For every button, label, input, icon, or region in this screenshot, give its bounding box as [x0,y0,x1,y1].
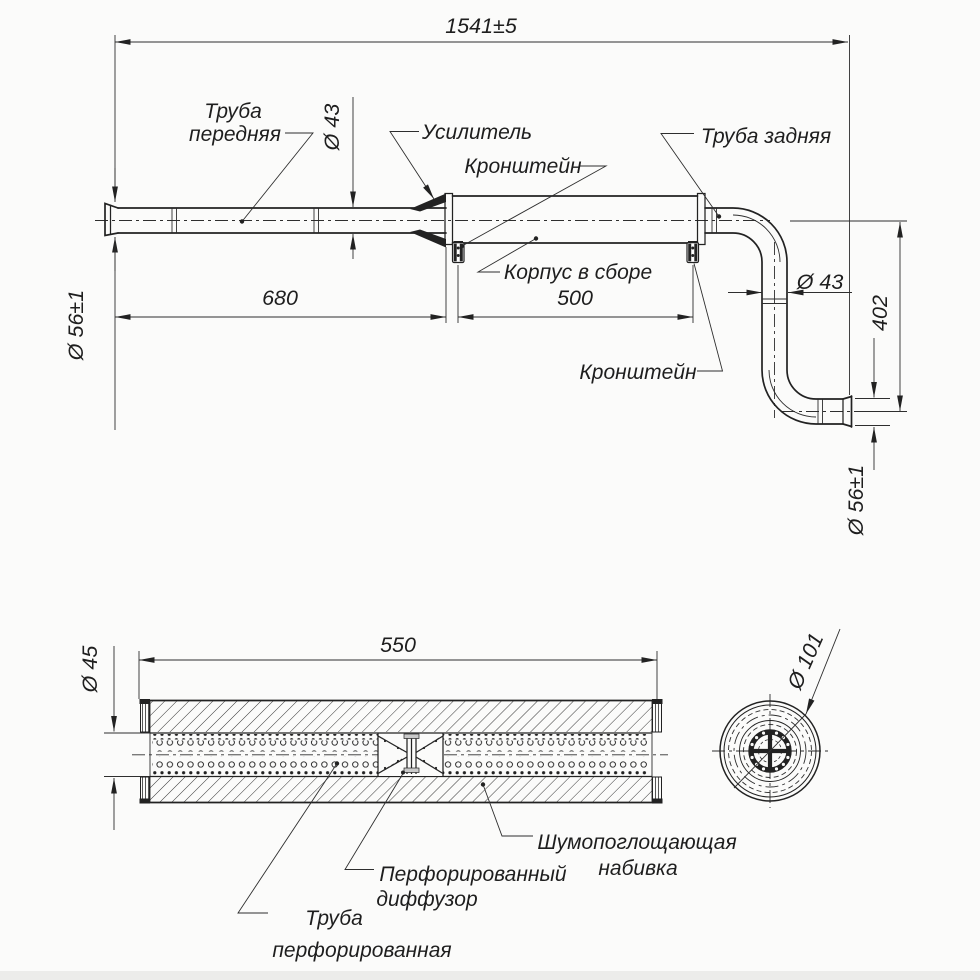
dim-overall-length-text: 1541±5 [445,14,518,38]
label-reinforcement-text: Усилитель [421,121,532,144]
label-diffuser-line2: диффузор [376,888,477,911]
padding-hatch-bottom [150,777,652,802]
dim-tail-pipe-dia-text: Ø 43 [796,270,844,294]
bracket-right [687,241,699,263]
exhaust-system-drawing: 1541±5 Ø 43 Ø 56±1 680 500 [0,0,980,980]
paper-background [0,0,980,980]
label-front-pipe-line1: Труба [204,100,262,123]
dim-perforated-pipe-dia-text: Ø 45 [78,645,102,694]
dim-front-pipe-dia-text: Ø 43 [320,104,344,152]
label-diffuser-line1: Перфорированный [379,863,566,886]
scan-edge-shadow [0,971,980,980]
label-padding-line1: Шумопоглощающая [537,831,736,854]
label-body-assembly-text: Корпус в сборе [504,261,652,284]
label-bracket-lower-text: Кронштейн [579,361,697,384]
drawing-canvas: 1541±5 Ø 43 Ø 56±1 680 500 [0,0,980,980]
label-perforated-pipe-line1: Труба [305,907,363,930]
label-bracket-upper-text: Кронштейн [464,155,582,178]
dim-front-pipe-length-text: 680 [262,286,298,310]
label-front-pipe-line2: передняя [189,123,281,146]
padding-hatch-top [150,701,652,732]
label-perforated-pipe-line2: перфорированная [272,939,451,962]
dim-tail-drop-text: 402 [868,295,892,331]
dim-body-length-text: 500 [557,286,593,310]
dim-inlet-dia-text: Ø 56±1 [64,290,88,361]
label-rear-pipe-text: Труба задняя [701,125,831,148]
label-padding-line2: набивка [598,857,677,880]
dim-section-length-text: 550 [380,633,416,657]
perforated-diffuser [378,734,444,777]
dim-outlet-dia-text: Ø 56±1 [844,465,868,536]
